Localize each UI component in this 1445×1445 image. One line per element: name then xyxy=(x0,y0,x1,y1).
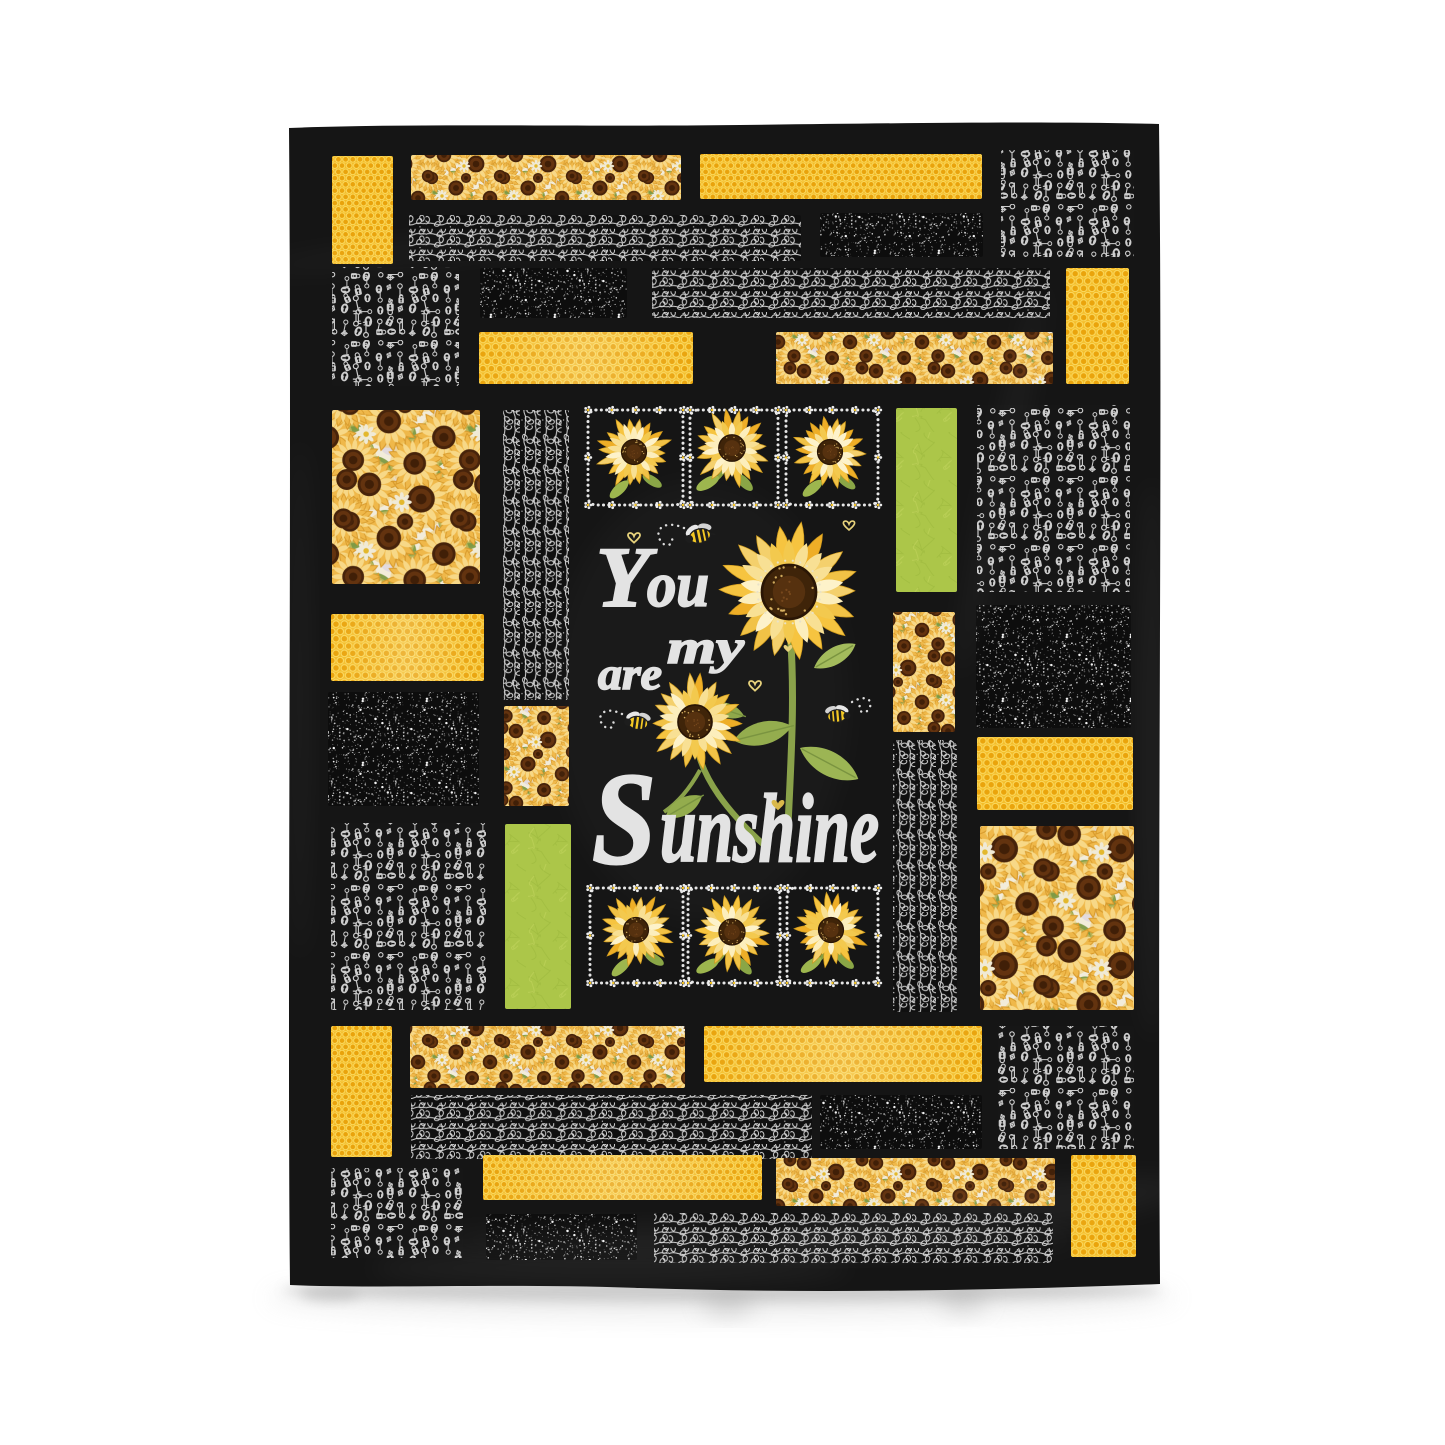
svg-text:my: my xyxy=(667,621,745,674)
svg-text:S: S xyxy=(592,745,656,892)
svg-text:are: are xyxy=(598,649,662,699)
svg-text:unshine: unshine xyxy=(660,775,879,882)
svg-text:ou: ou xyxy=(647,549,709,620)
